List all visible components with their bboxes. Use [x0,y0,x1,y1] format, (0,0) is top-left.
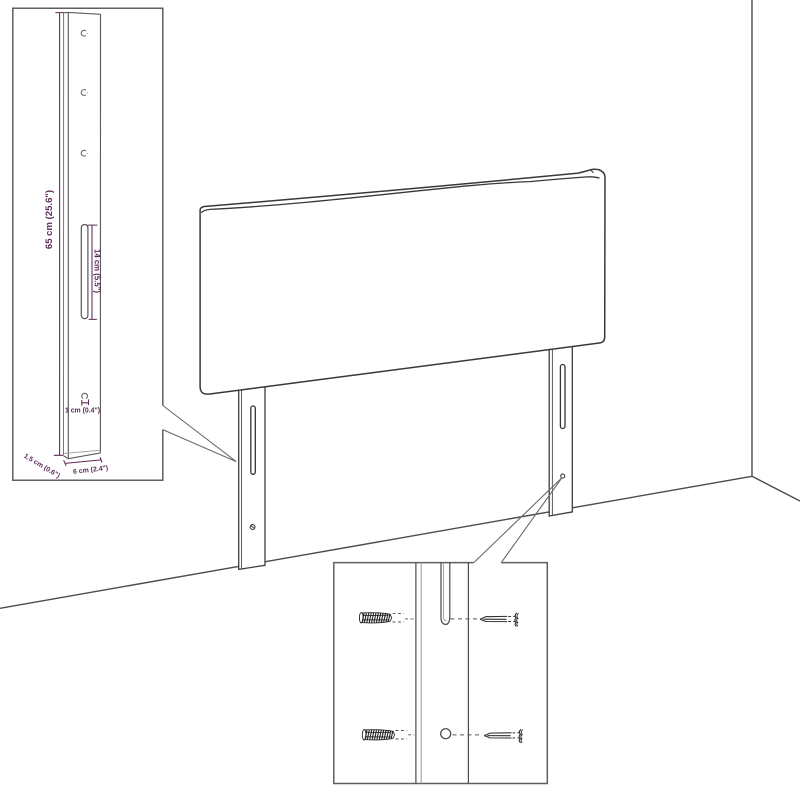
svg-text:65 cm (25.6"): 65 cm (25.6") [44,190,55,249]
svg-text:1 cm (0.4"): 1 cm (0.4") [65,408,100,415]
svg-text:14 cm (5.5"): 14 cm (5.5") [93,249,102,293]
